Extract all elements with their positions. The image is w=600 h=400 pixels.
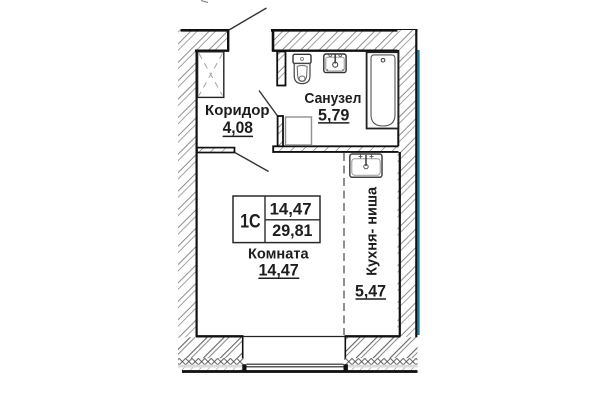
svg-text:Комната: Комната xyxy=(248,246,309,263)
svg-text:14,47: 14,47 xyxy=(270,200,312,218)
svg-text:14,47: 14,47 xyxy=(258,262,298,280)
svg-text:1С: 1С xyxy=(240,211,261,233)
svg-text:Санузел: Санузел xyxy=(304,90,361,107)
svg-text:5,47: 5,47 xyxy=(355,282,386,300)
svg-text:Коридор: Коридор xyxy=(205,102,270,119)
svg-text:29,81: 29,81 xyxy=(272,222,312,240)
svg-text:4,08: 4,08 xyxy=(223,119,253,137)
svg-text:5,79: 5,79 xyxy=(318,107,349,125)
svg-text:Кухня- ниша: Кухня- ниша xyxy=(365,186,381,276)
